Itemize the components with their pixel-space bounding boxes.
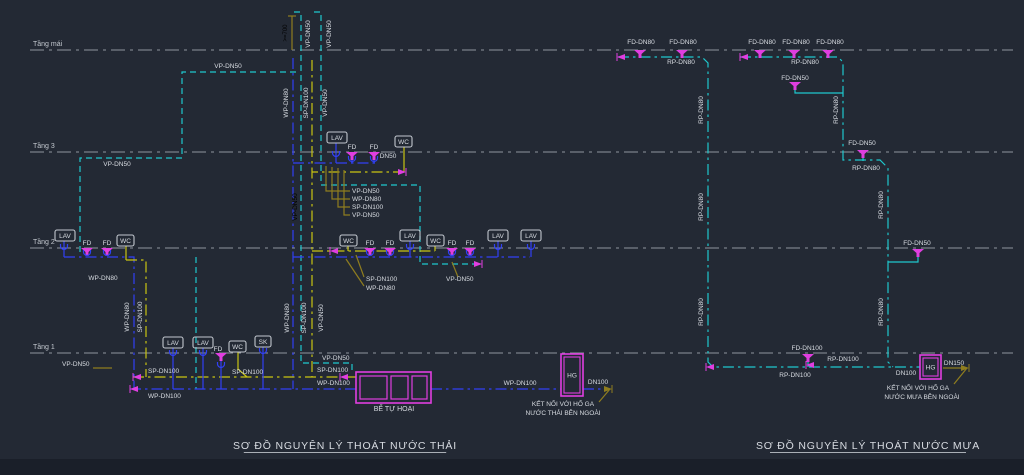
pipe-label: WP-DN100	[148, 393, 181, 400]
fixture-label: SK	[259, 339, 268, 346]
pipe-label: WP-DN80	[366, 285, 396, 292]
pipe-label: FD	[448, 240, 457, 247]
pipe-label: FD-DN80	[627, 39, 655, 46]
pipe-label: DN100	[896, 370, 917, 377]
pipe-label: VP-DN50	[305, 20, 312, 48]
pipe-label: WP-DN80	[88, 275, 118, 282]
pipe-label: VP-DN50	[318, 304, 325, 332]
fixture-label: LAV	[331, 135, 343, 142]
pipe-label: >=700	[283, 24, 289, 42]
floor-label: Tầng 1	[33, 342, 55, 351]
pipe-label: DN50	[380, 153, 397, 160]
fixture-label: WC	[343, 238, 354, 245]
pipe-label: FD-DN50	[903, 240, 931, 247]
pipe-label: FD-DN50	[781, 75, 809, 82]
pipe-label: FD	[386, 240, 395, 247]
pipe-label: WP-DN80	[283, 88, 290, 118]
pipe-label: FD-DN100	[791, 345, 822, 352]
pipe-label: RP-DN80	[791, 59, 819, 66]
pipe-label: SP-DN100	[301, 302, 308, 333]
fixture-label: WC	[120, 238, 131, 245]
pipe-label: SP-DN100	[352, 204, 383, 211]
pipe-label: WP-DN100	[317, 380, 350, 387]
plumbing-schematic-svg: Tầng máiTầng 3Tầng 2Tầng 1LAVWCLAVWCWCLA…	[0, 0, 1024, 475]
fixture-label: WC	[232, 344, 243, 351]
fixture-label: LAV	[404, 233, 416, 240]
pipe-label: FD-DN50	[848, 140, 876, 147]
fixture-label: LAV	[492, 233, 504, 240]
cad-drawing-canvas[interactable]: Tầng máiTầng 3Tầng 2Tầng 1LAVWCLAVWCWCLA…	[0, 0, 1024, 475]
diagram-title: SƠ ĐỒ NGUYÊN LÝ THOÁT NƯỚC MƯA	[756, 439, 980, 452]
pipe-label: RP-DN80	[698, 193, 705, 221]
fixture-label: LAV	[167, 340, 179, 347]
pipe-label: DN100	[588, 379, 609, 386]
pipe-label: SP-DN100	[137, 301, 144, 332]
pipe-label: SP-DN100	[317, 367, 348, 374]
pipe-label: RP-DN80	[878, 298, 885, 326]
bottom-bar	[0, 459, 1024, 475]
pipe-label: RP-DN100	[779, 372, 811, 379]
pipe-label: VP-DN50	[62, 361, 90, 368]
fixture-label: LAV	[59, 233, 71, 240]
pipe-label: WP-DN80	[284, 303, 291, 333]
floor-label: Tầng 3	[33, 141, 55, 150]
manhole-label: HG	[926, 365, 936, 372]
floor-label: Tầng 2	[33, 237, 55, 246]
pipe-label: RP-DN80	[878, 191, 885, 219]
pipe-label: VP-DN50	[322, 355, 350, 362]
pipe-label: FD-DN80	[782, 39, 810, 46]
pipe-label: FD-DN80	[669, 39, 697, 46]
fixture-label: LAV	[525, 233, 537, 240]
drawing-background	[0, 0, 1024, 475]
manhole-label: HG	[567, 373, 577, 380]
pipe-label: RP-DN80	[698, 298, 705, 326]
pipe-label: VP-DN50	[103, 161, 131, 168]
pipe-label: WP-DN100	[504, 380, 537, 387]
pipe-label: VP-DN50	[326, 20, 333, 48]
pipe-label: FD	[83, 240, 92, 247]
fixture-label: LAV	[197, 340, 209, 347]
pipe-label: SP-DN100	[148, 368, 179, 375]
pipe-label: FD	[214, 346, 223, 353]
pipe-label: NƯỚC MƯA BÊN NGOÀI	[884, 392, 959, 401]
pipe-label: FD-DN80	[748, 39, 776, 46]
pipe-label: SP-DN100	[366, 276, 397, 283]
pipe-label: FD	[348, 144, 357, 151]
pipe-label: RP-DN80	[667, 59, 695, 66]
pipe-label: RP-DN80	[833, 96, 840, 124]
pipe-label: FD	[103, 240, 112, 247]
fixture-label: WC	[398, 139, 409, 146]
pipe-label: VP-DN50	[352, 188, 380, 195]
pipe-label: NƯỚC THẢI BÊN NGOÀI	[526, 408, 601, 417]
fixture-label: WC	[430, 238, 441, 245]
pipe-label: RP-DN80	[852, 165, 880, 172]
pipe-label: VP-DN50	[292, 193, 299, 221]
pipe-label: BỂ TỰ HOẠI	[374, 404, 415, 413]
pipe-label: FD	[370, 144, 379, 151]
pipe-label: VP-DN50	[352, 212, 380, 219]
pipe-label: SP-DN100	[232, 369, 263, 376]
pipe-label: WP-DN80	[124, 302, 131, 332]
pipe-label: FD	[366, 240, 375, 247]
pipe-label: RP-DN80	[698, 96, 705, 124]
pipe-label: WP-DN80	[352, 196, 382, 203]
floor-label: Tầng mái	[33, 39, 63, 48]
pipe-label: FD	[466, 240, 475, 247]
pipe-label: VP-DN50	[322, 89, 329, 117]
pipe-label: SP-DN100	[303, 87, 310, 118]
pipe-label: VP-DN50	[214, 63, 242, 70]
pipe-label: VP-DN50	[446, 276, 474, 283]
pipe-label: DN150	[944, 360, 965, 367]
pipe-label: RP-DN100	[827, 356, 859, 363]
pipe-label: FD-DN80	[816, 39, 844, 46]
diagram-title: SƠ ĐỒ NGUYÊN LÝ THOÁT NƯỚC THẢI	[233, 439, 457, 452]
